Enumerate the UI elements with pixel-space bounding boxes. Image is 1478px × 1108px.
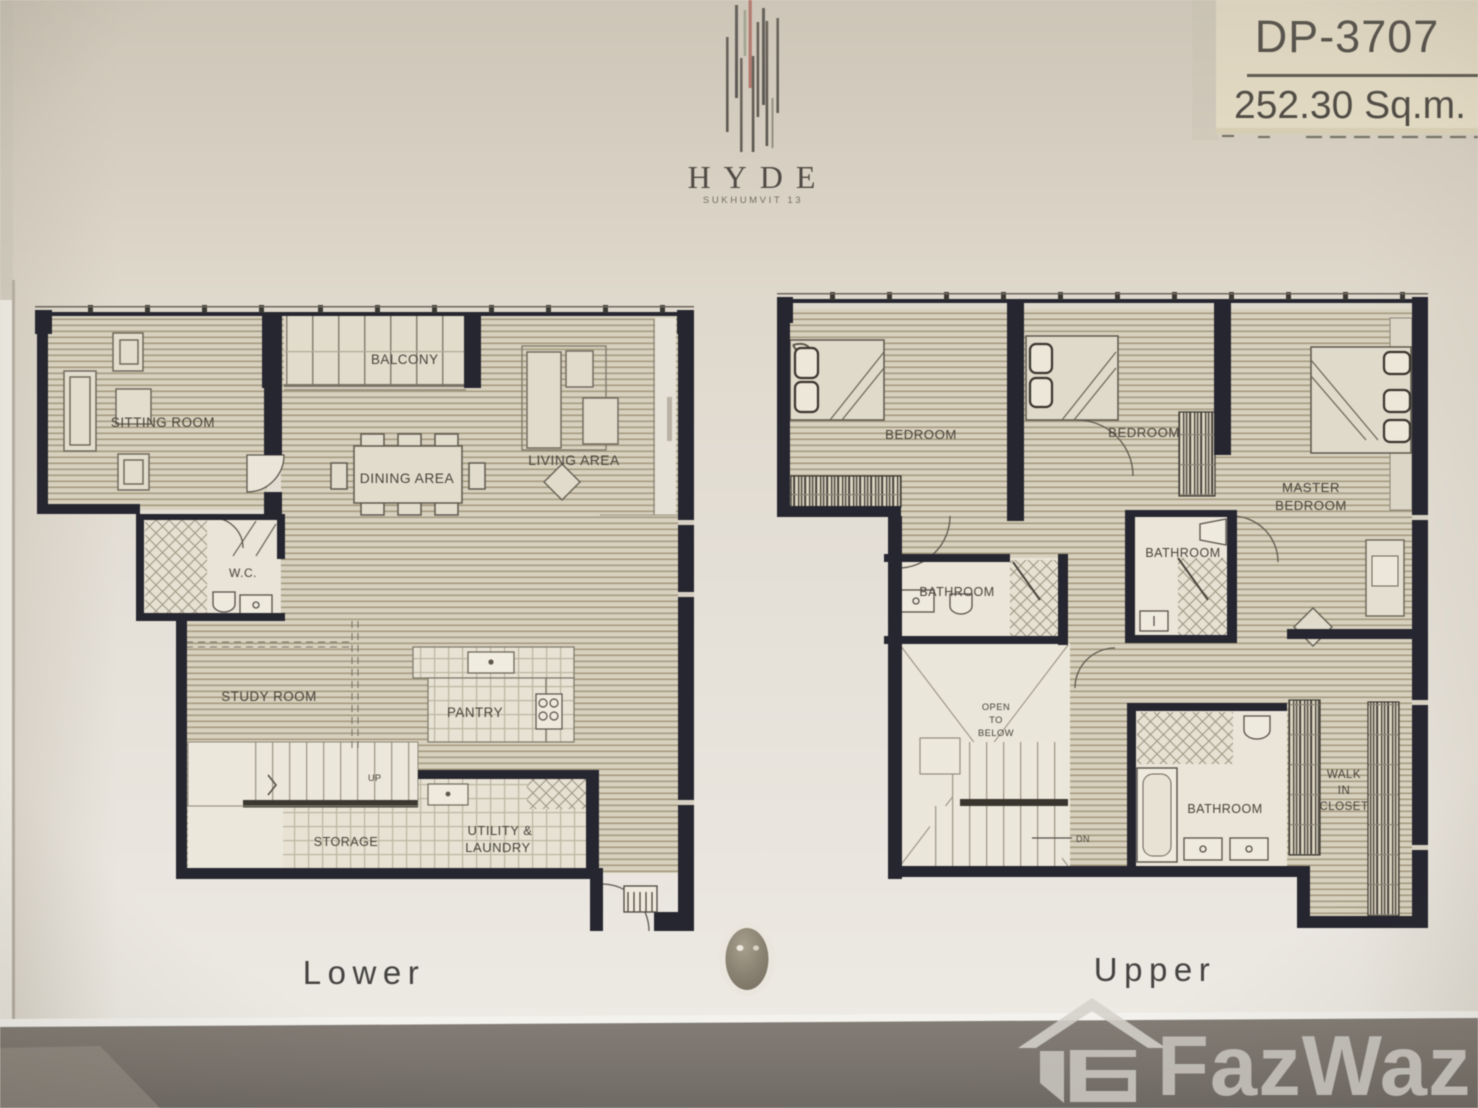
svg-text:FazWaz: FazWaz bbox=[1157, 1019, 1472, 1108]
